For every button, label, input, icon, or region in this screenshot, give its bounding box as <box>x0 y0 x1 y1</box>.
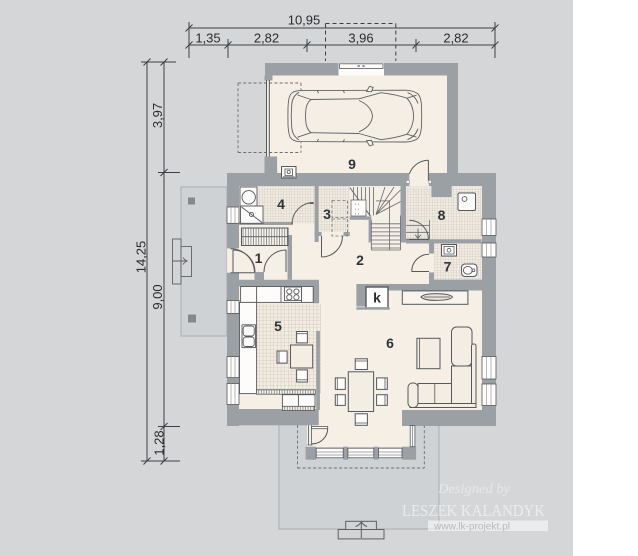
svg-text:6: 6 <box>386 335 394 351</box>
svg-text:3,97: 3,97 <box>150 103 165 128</box>
svg-text:2: 2 <box>356 252 364 268</box>
svg-text:www.lk-projekt.pl: www.lk-projekt.pl <box>433 522 510 533</box>
svg-text:Designed by: Designed by <box>437 482 511 497</box>
svg-text:2,82: 2,82 <box>443 31 468 46</box>
svg-text:14,25: 14,25 <box>134 241 149 274</box>
svg-text:1,28: 1,28 <box>152 430 167 455</box>
svg-text:1,35: 1,35 <box>195 31 220 46</box>
svg-text:1: 1 <box>255 250 263 266</box>
svg-text:3: 3 <box>323 206 331 222</box>
svg-text:2,82: 2,82 <box>254 31 279 46</box>
svg-text:8: 8 <box>438 207 446 223</box>
svg-text:3,96: 3,96 <box>348 31 373 46</box>
svg-text:5: 5 <box>274 318 282 334</box>
svg-text:9: 9 <box>348 156 356 172</box>
svg-text:9,00: 9,00 <box>150 284 165 309</box>
svg-text:LESZEK KALANDYK: LESZEK KALANDYK <box>402 501 545 520</box>
svg-text:4: 4 <box>277 196 285 212</box>
svg-text:k: k <box>373 290 381 306</box>
svg-text:10,95: 10,95 <box>288 13 321 28</box>
svg-text:7: 7 <box>444 259 452 275</box>
